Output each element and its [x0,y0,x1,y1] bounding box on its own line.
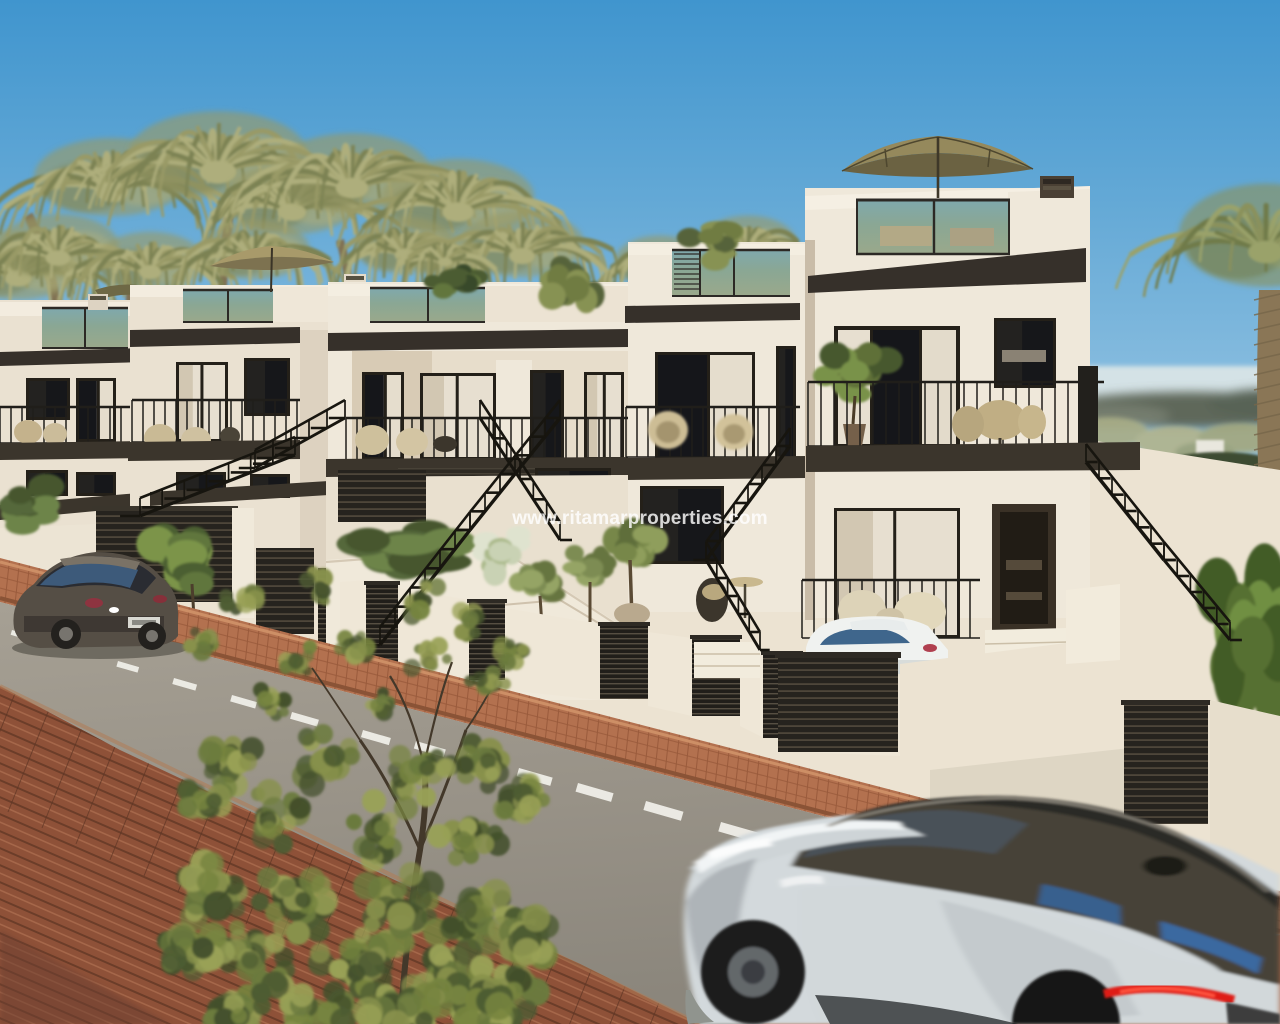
svg-text:www.ritamarproperties.com: www.ritamarproperties.com [511,508,768,529]
